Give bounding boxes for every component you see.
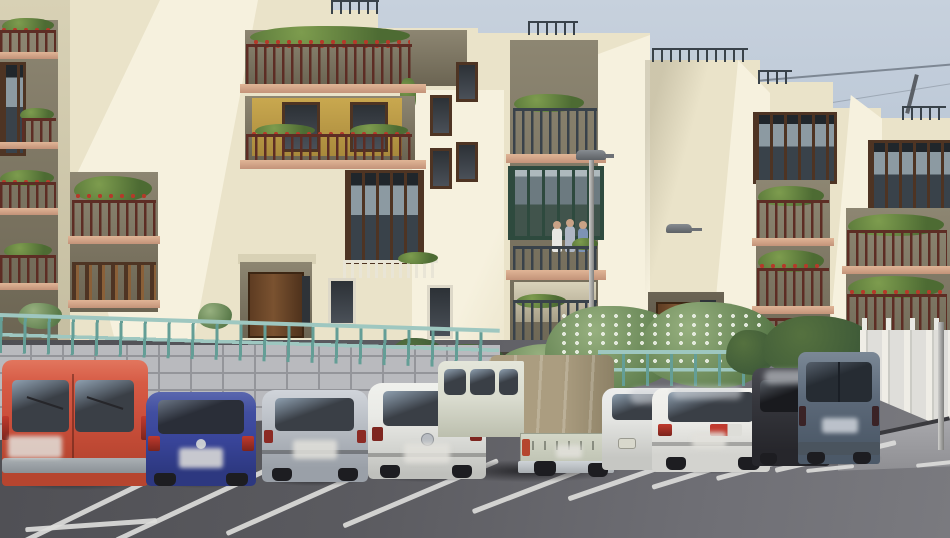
wheel (853, 452, 871, 464)
entrance-sidelight (302, 276, 310, 326)
roof-railing-left (331, 0, 379, 14)
stair-window (430, 148, 452, 189)
balcony-slab (68, 236, 160, 244)
license-plate-blurred (556, 445, 582, 458)
window-divider (838, 362, 840, 402)
vehicle-canvas-truck (438, 355, 614, 477)
person-head (553, 221, 561, 229)
balcony-slab (0, 208, 58, 215)
cab-window (499, 369, 518, 395)
headlight (618, 438, 636, 449)
license-plate-blurred (822, 418, 858, 433)
taillight (242, 436, 254, 451)
balcony-slab (0, 283, 58, 290)
vehicle-blue-hatchback (146, 392, 256, 486)
balcony-slab (240, 160, 426, 169)
balcony-slab (68, 300, 160, 308)
taillight (264, 430, 273, 443)
license-plate-blurred (8, 436, 62, 458)
street-lamp-arm (604, 154, 614, 158)
balcony-railing (0, 182, 56, 211)
balcony-railing (246, 134, 412, 163)
door-seam (72, 374, 74, 460)
balcony-railing (22, 118, 56, 145)
wooden-bay-window-right-1 (753, 112, 837, 184)
vehicle-red-van (2, 360, 148, 486)
balcony-plants (398, 252, 438, 264)
cab-window (444, 369, 466, 395)
taillight (372, 427, 383, 441)
wheel (338, 468, 358, 481)
rear-window (275, 398, 354, 431)
taillight (148, 436, 160, 451)
tower-window (456, 62, 478, 102)
taillight (799, 406, 806, 426)
van-rear-window (75, 380, 134, 432)
wheel (226, 473, 248, 486)
license-plate-blurred (293, 440, 337, 459)
balcony-slab (752, 238, 834, 246)
wood-slat-balcony (72, 262, 156, 303)
rear-window (158, 400, 244, 434)
street-lamp-arm-right (690, 228, 702, 231)
balcony-railing (246, 44, 412, 87)
license-plate-blurred (179, 448, 223, 468)
privacy-blur (672, 386, 742, 399)
bumper (2, 458, 148, 473)
truck-cab (438, 361, 524, 437)
wheel (272, 468, 292, 481)
wooden-bay-window-left-block (345, 170, 424, 264)
roof-railing-right-1 (652, 48, 748, 62)
right-edge-pole (938, 322, 944, 450)
tower-window (456, 142, 478, 182)
balcony-slab (240, 84, 426, 93)
street-photo (0, 0, 950, 538)
taillight (522, 439, 530, 456)
taillight (658, 424, 672, 436)
cab-window (470, 369, 495, 395)
wheel (380, 465, 400, 478)
balcony-slab (842, 266, 950, 274)
person-head (566, 219, 574, 227)
roof-railing-tower (528, 21, 578, 35)
balcony-railing (757, 200, 829, 241)
wheel (760, 453, 777, 465)
roof-railing-right-2 (758, 70, 792, 84)
vehicle-gray-van (798, 352, 880, 464)
wheel (666, 457, 686, 470)
balcony-railing (0, 255, 56, 286)
balcony-railing (72, 200, 156, 239)
balcony-slab (0, 52, 58, 59)
wheel (154, 473, 176, 486)
balcony-railing (757, 268, 829, 309)
license-plate-blurred (692, 432, 726, 448)
wheel (807, 452, 825, 464)
balcony-slab (0, 142, 58, 149)
street-lamp-head-right (666, 224, 692, 233)
balcony-railing (847, 230, 947, 269)
roof-railing-right-3 (902, 106, 946, 120)
person-head (579, 221, 587, 229)
window (328, 278, 356, 326)
wheel (534, 461, 556, 476)
vehicle-silver-hatchback (262, 390, 368, 482)
taillight (872, 406, 879, 426)
taillight (357, 430, 366, 443)
wooden-bay-window-right-2 (868, 140, 950, 212)
street-lamp-head (576, 150, 606, 160)
stair-window (430, 95, 452, 136)
